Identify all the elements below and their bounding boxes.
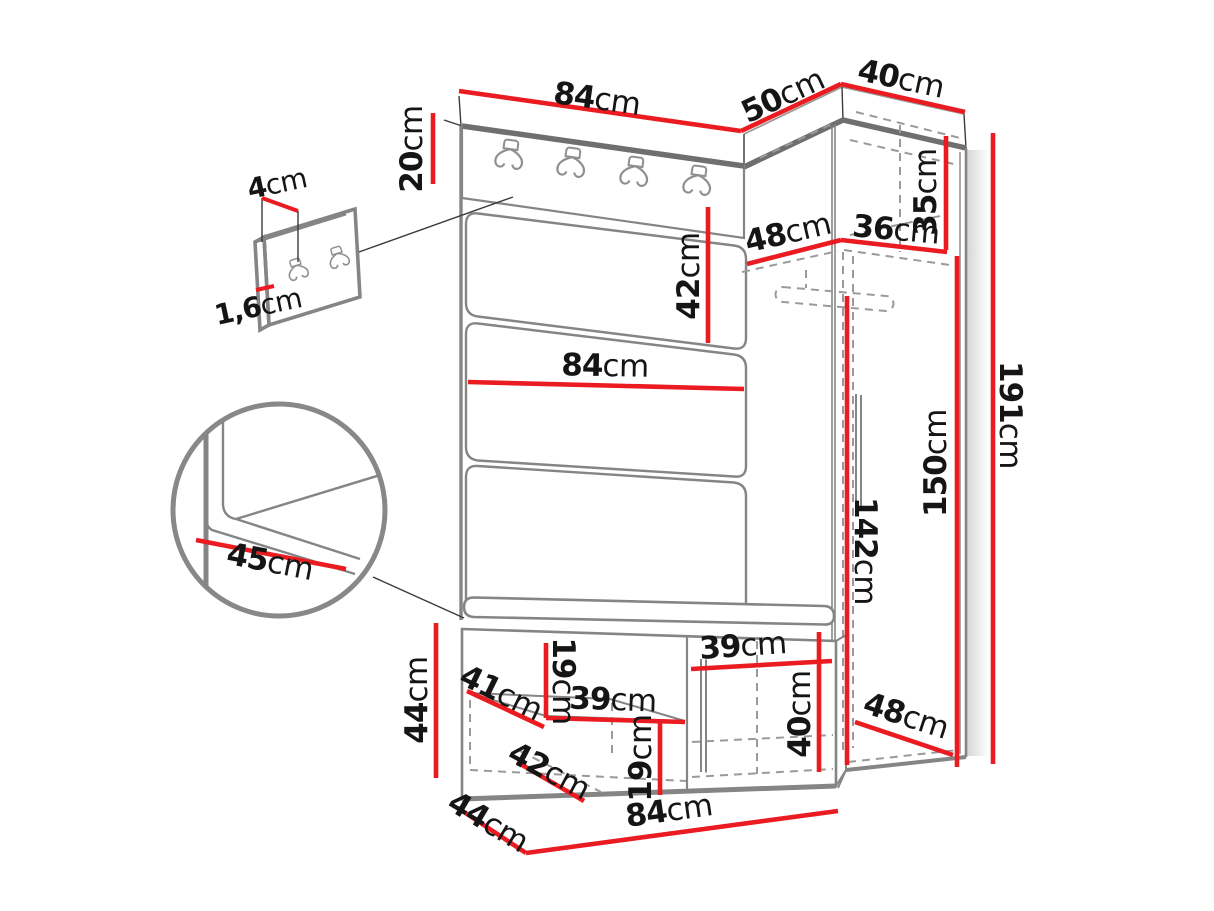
panel-row-2 xyxy=(466,323,746,476)
dim-label-total-height: 191cm xyxy=(992,361,1028,469)
dim-label-lower-gap: 19cm xyxy=(623,714,659,801)
dim-label-panel-height: 42cm xyxy=(671,232,707,319)
dim-label-hook-plate-width: 4cm xyxy=(244,161,310,206)
dim-label-panel-width: 84cm xyxy=(561,347,649,385)
callout-line-seat xyxy=(373,577,464,618)
dim-label-interior-height: 150cm xyxy=(918,409,954,517)
dim-label-door-width: 39cm xyxy=(698,625,788,667)
dim-label-top-width: 84cm xyxy=(551,75,643,123)
dim-label-top-depth: 50cm xyxy=(736,61,830,131)
wardrobe-door-handle xyxy=(856,394,861,506)
dim-label-bench-height: 44cm xyxy=(399,656,435,743)
furniture-dimension-diagram: 84cm 50cm 40cm 20cm 4cm 1,6cm 42cm 48cm … xyxy=(0,0,1214,911)
seat-detail-circle xyxy=(173,398,464,618)
diagram-svg: 84cm 50cm 40cm 20cm 4cm 1,6cm 42cm 48cm … xyxy=(0,0,1214,911)
bench-cushion xyxy=(464,598,834,625)
dim-label-top-shelf-height: 35cm xyxy=(908,148,944,235)
panel-row-3 xyxy=(466,466,746,614)
dim-label-upper-shelf-width: 39cm xyxy=(569,680,658,719)
dim-label-rail-height: 142cm xyxy=(847,497,883,605)
dim-label-hook-board-height: 20cm xyxy=(394,105,430,192)
dim-label-door-height: 40cm xyxy=(782,670,818,757)
